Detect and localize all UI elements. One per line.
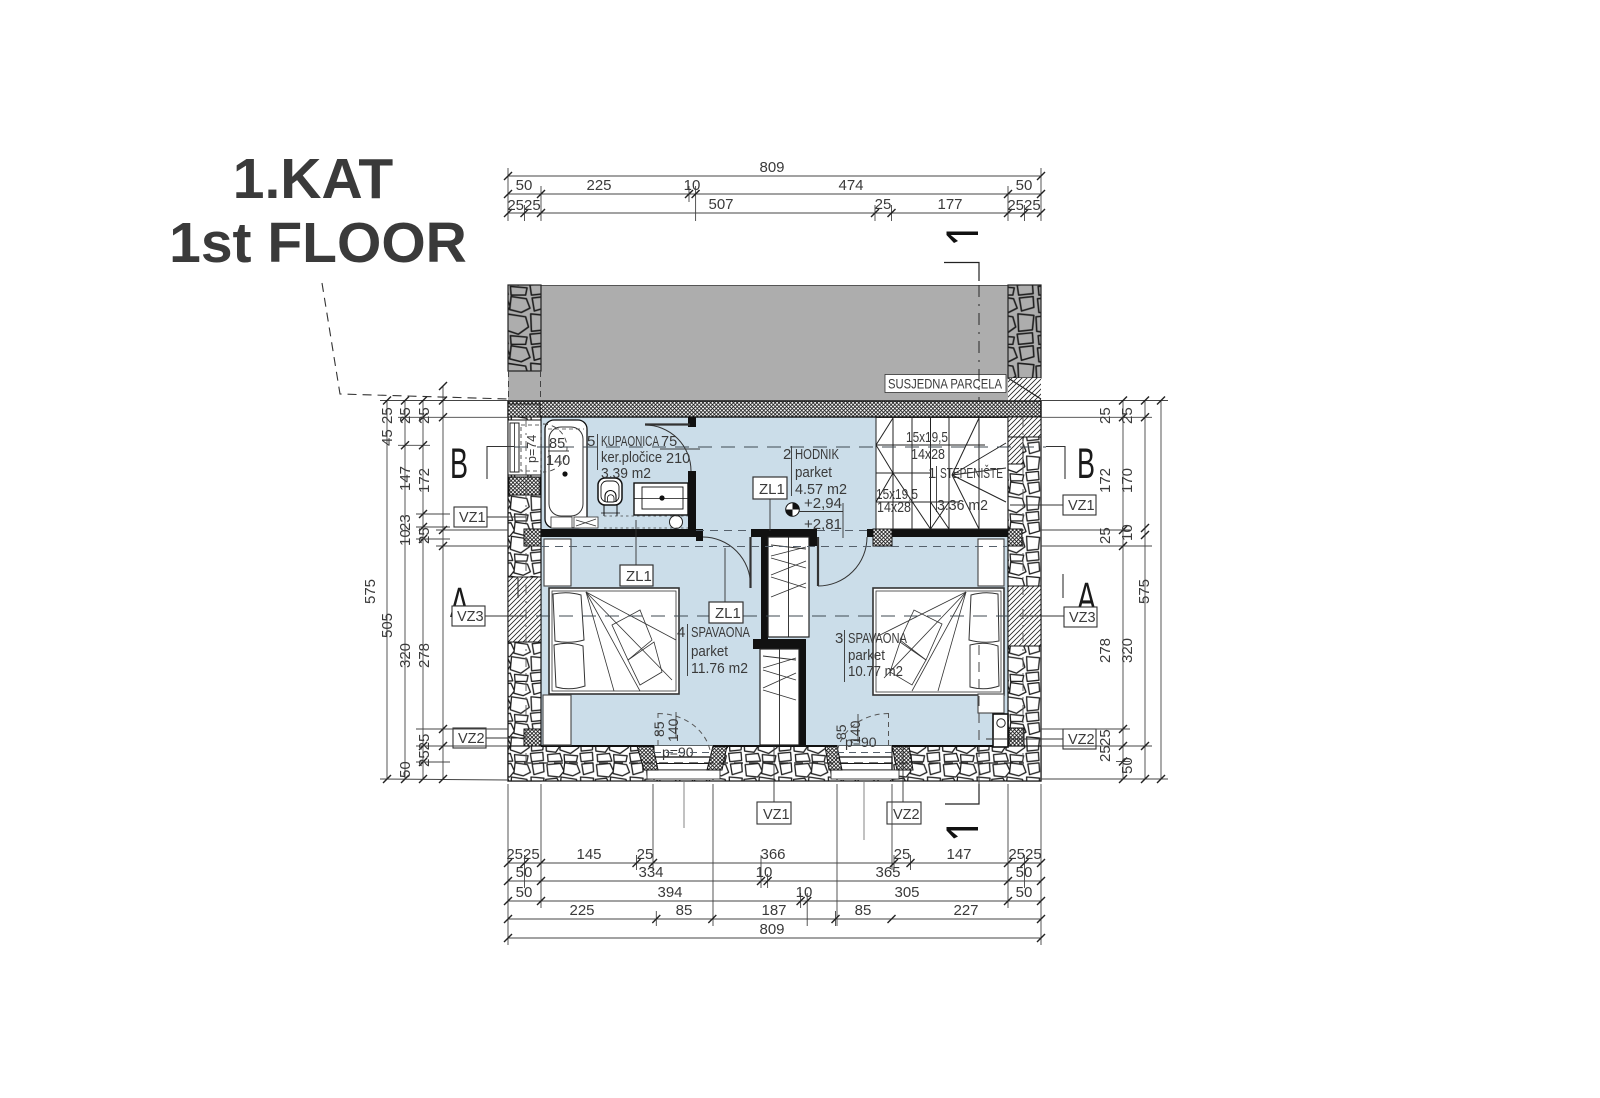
svg-text:2525: 2525 (416, 734, 433, 767)
svg-text:4: 4 (677, 624, 685, 641)
svg-text:B: B (1077, 440, 1095, 488)
svg-text:809: 809 (759, 159, 784, 176)
svg-text:505: 505 (379, 613, 396, 638)
svg-text:10: 10 (684, 177, 701, 194)
svg-text:575: 575 (362, 579, 379, 604)
svg-text:VZ1: VZ1 (1068, 498, 1095, 514)
svg-text:25: 25 (1119, 407, 1136, 424)
svg-text:SPAVAONA: SPAVAONA (848, 630, 907, 647)
svg-text:394: 394 (657, 884, 682, 901)
svg-text:VZ3: VZ3 (457, 609, 484, 625)
svg-text:10: 10 (756, 864, 773, 881)
svg-text:147: 147 (397, 466, 414, 491)
svg-text:23: 23 (397, 514, 414, 531)
svg-text:VZ1: VZ1 (763, 807, 790, 823)
svg-text:14x28: 14x28 (911, 446, 945, 463)
svg-text:278: 278 (1097, 638, 1114, 663)
svg-text:VZ2: VZ2 (893, 807, 920, 823)
svg-text:225: 225 (586, 177, 611, 194)
svg-text:2525: 2525 (1008, 846, 1041, 863)
svg-text:VZ3: VZ3 (1069, 610, 1096, 626)
svg-text:parket: parket (848, 647, 886, 664)
svg-text:172: 172 (416, 468, 433, 493)
svg-text:VZ2: VZ2 (458, 731, 485, 747)
svg-text:1.KAT: 1.KAT (233, 147, 394, 211)
svg-text:25: 25 (416, 527, 433, 544)
svg-text:227: 227 (953, 902, 978, 919)
svg-text:50: 50 (397, 761, 414, 778)
svg-text:85: 85 (676, 902, 693, 919)
svg-text:STEPENIŠTE: STEPENIŠTE (940, 465, 1003, 482)
svg-text:2: 2 (783, 446, 791, 463)
svg-text:50: 50 (516, 864, 533, 881)
svg-text:25: 25 (875, 196, 892, 213)
svg-text:25: 25 (397, 407, 414, 424)
svg-text:ZL1: ZL1 (715, 605, 741, 622)
svg-text:3.39 m2: 3.39 m2 (601, 465, 651, 482)
svg-text:507: 507 (708, 196, 733, 213)
svg-text:225: 225 (569, 902, 594, 919)
svg-text:170: 170 (1119, 468, 1136, 493)
svg-text:parket: parket (691, 643, 729, 660)
svg-text:2525: 2525 (1007, 197, 1040, 214)
svg-text:187: 187 (761, 902, 786, 919)
svg-text:p=90: p=90 (845, 734, 877, 750)
svg-text:366: 366 (760, 846, 785, 863)
svg-text:1st FLOOR: 1st FLOOR (169, 211, 467, 275)
svg-text:ZL1: ZL1 (626, 568, 652, 585)
svg-text:10: 10 (1119, 524, 1136, 541)
svg-text:177: 177 (937, 196, 962, 213)
svg-text:50: 50 (1119, 757, 1136, 774)
svg-text:25: 25 (894, 846, 911, 863)
svg-text:25: 25 (1097, 729, 1114, 746)
svg-text:25: 25 (1097, 407, 1114, 424)
svg-text:85: 85 (549, 436, 565, 452)
svg-text:HODNIK: HODNIK (795, 446, 839, 463)
svg-text:25: 25 (1097, 527, 1114, 544)
svg-text:VZ1: VZ1 (459, 510, 486, 526)
svg-text:50: 50 (516, 177, 533, 194)
svg-text:210: 210 (666, 451, 690, 467)
svg-text:320: 320 (1119, 638, 1136, 663)
svg-text:3: 3 (835, 630, 843, 647)
svg-text:parket: parket (795, 464, 833, 481)
svg-text:B: B (450, 440, 468, 488)
svg-text:25: 25 (416, 407, 433, 424)
svg-text:50: 50 (1016, 864, 1033, 881)
svg-text:85: 85 (855, 902, 872, 919)
svg-text:45: 45 (379, 429, 396, 446)
svg-text:3.36 m2: 3.36 m2 (937, 497, 988, 514)
svg-text:320: 320 (397, 643, 414, 668)
svg-text:305: 305 (894, 884, 919, 901)
svg-text:25: 25 (637, 846, 654, 863)
svg-text:140: 140 (665, 718, 681, 742)
svg-text:809: 809 (759, 921, 784, 938)
svg-text:2525: 2525 (507, 197, 540, 214)
svg-text:+2,94: +2,94 (804, 495, 842, 512)
svg-text:575: 575 (1136, 579, 1153, 604)
svg-text:147: 147 (946, 846, 971, 863)
svg-text:278: 278 (416, 643, 433, 668)
svg-text:50: 50 (1016, 884, 1033, 901)
svg-text:172: 172 (1097, 468, 1114, 493)
svg-text:50: 50 (1016, 177, 1033, 194)
svg-text:25: 25 (379, 407, 396, 424)
svg-text:10: 10 (397, 529, 414, 546)
svg-text:10: 10 (796, 884, 813, 901)
svg-text:474: 474 (838, 177, 863, 194)
svg-text:14x28: 14x28 (877, 499, 911, 516)
svg-text:ZL1: ZL1 (759, 481, 785, 498)
svg-text:25: 25 (1097, 745, 1114, 762)
svg-text:SUSJEDNA PARCELA: SUSJEDNA PARCELA (888, 376, 1003, 392)
svg-text:ker.pločice: ker.pločice (601, 449, 662, 466)
svg-text:SPAVAONA: SPAVAONA (691, 624, 750, 641)
svg-text:15x19,5: 15x19,5 (906, 429, 948, 446)
svg-text:p=74: p=74 (525, 435, 539, 463)
svg-text:365: 365 (875, 864, 900, 881)
svg-text:50: 50 (516, 884, 533, 901)
svg-text:145: 145 (576, 846, 601, 863)
svg-text:334: 334 (638, 864, 663, 881)
svg-text:11.76 m2: 11.76 m2 (691, 660, 748, 677)
svg-text:2525: 2525 (506, 846, 539, 863)
svg-text:10.77 m2: 10.77 m2 (848, 663, 903, 680)
svg-text:1: 1 (928, 465, 936, 482)
svg-text:75: 75 (661, 434, 677, 450)
